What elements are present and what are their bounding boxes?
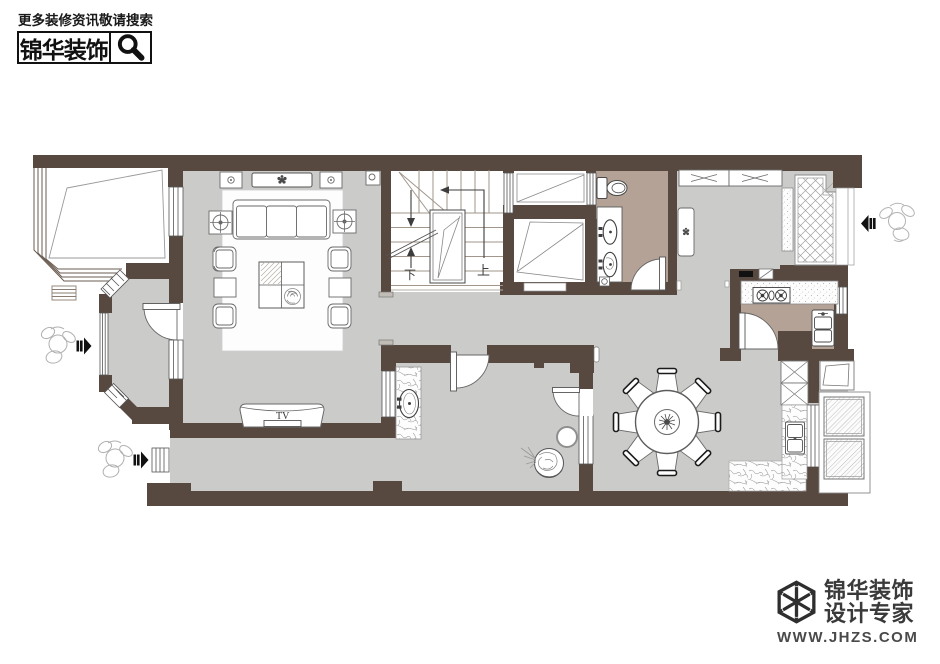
svg-text:下: 下	[404, 268, 416, 282]
svg-text:上: 上	[477, 263, 490, 278]
